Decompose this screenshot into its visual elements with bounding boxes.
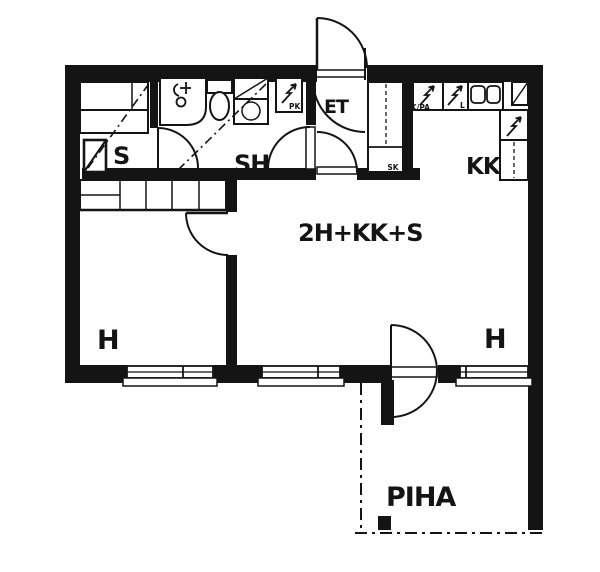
top-wall-right [367,65,543,82]
yard-door-leaf [390,367,437,377]
bottom-wall-seg2 [213,365,262,383]
window-sill [258,378,344,386]
exterior-walls [65,65,543,530]
kitchen-cabinet [500,140,528,180]
label-washing-machine: PK [289,102,301,111]
label-entry-hall: ET [324,96,349,118]
sauna-bench-upper [80,82,148,110]
label-right-room: H [484,324,506,355]
floor-plan: SK PK [0,0,600,572]
left-wall [65,65,80,383]
window-sill [456,378,532,386]
window-right-room [456,366,532,386]
sauna-door [158,128,198,168]
cleaning-closet: SK [368,82,403,172]
entry-living-door-swing [317,132,357,172]
label-cleaning-closet: SK [387,163,399,172]
bathroom-fixtures: PK [160,78,302,170]
corner-cabinet [512,82,528,105]
left-room-door [186,213,228,255]
sauna-right-wall [150,82,158,128]
entry-living-door-leaf [317,167,357,174]
windows [123,366,532,386]
shower-door [268,127,315,169]
left-room-wall-bottom [226,255,237,383]
shower-door-leaf [306,127,315,169]
label-kitchenette: KK [466,154,502,180]
wardrobe-row [80,180,226,210]
window-left-room [123,366,217,386]
label-shower-room: SH [234,150,269,178]
window-living-room [258,366,344,386]
sauna-door-swing [158,128,198,168]
sink-icon [468,82,503,110]
floor-plan-drawing: SK PK [0,0,600,572]
left-room-door-swing [186,213,228,255]
right-wall [528,65,543,530]
label-stove: L [460,101,465,110]
washing-machine-icon [234,99,268,124]
window-sill [123,378,217,386]
reserved-space-box [234,78,268,99]
label-left-room: H [97,325,119,356]
yard-door [390,325,437,417]
kitchen-entry-wall [403,82,413,180]
yard-corner-post [378,516,391,530]
label-sauna: S [113,142,129,170]
sauna-bench-lower [80,110,148,133]
left-room-wall-top [226,180,237,212]
shower-door-swing [268,127,310,169]
toilet-icon [207,80,232,120]
entry-living-door [317,132,357,174]
yard-wall-stub [381,380,394,425]
front-door-swing-out [317,18,367,68]
bottom-wall-seg1 [65,365,127,383]
label-apartment-type: 2H+KK+S [298,219,422,247]
label-fridge-freezer: JK/PA [407,103,430,112]
dishwasher-space [500,110,528,140]
label-yard: PIHA [386,482,456,513]
